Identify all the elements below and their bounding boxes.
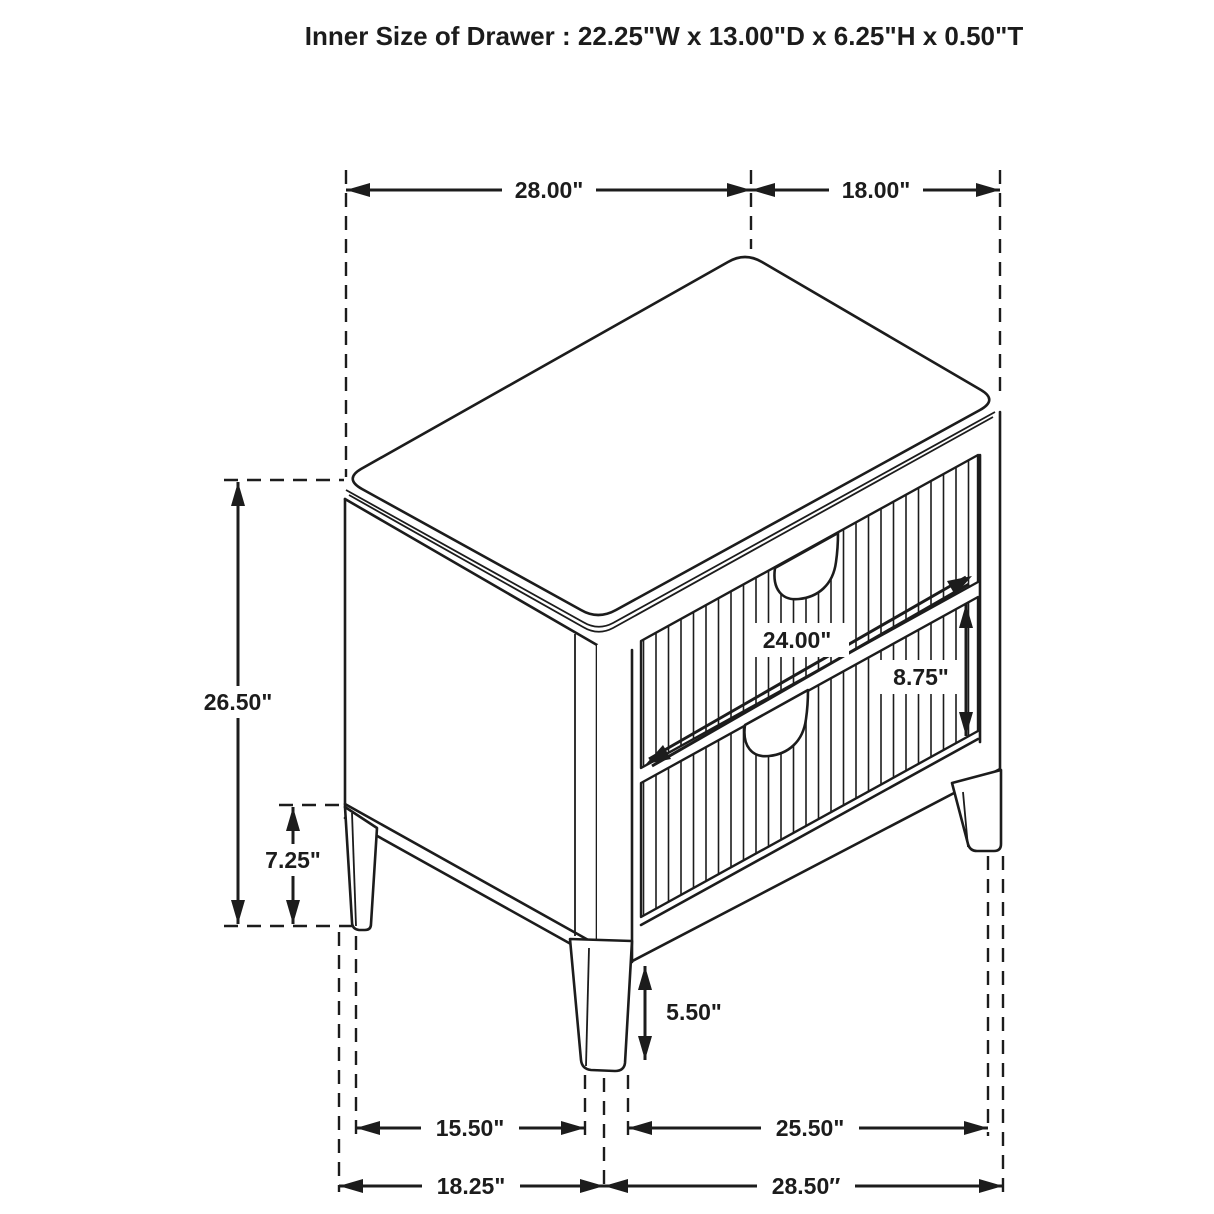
dim-label-base-depth-inner: 15.50" <box>436 1115 504 1141</box>
dim-label-overall-height: 26.50" <box>204 689 272 715</box>
dim-label-drawer-height: 8.75" <box>893 664 949 690</box>
dim-label-base-width-inner: 25.50" <box>776 1115 844 1141</box>
front-leg <box>570 939 632 1071</box>
right-leg <box>952 770 1001 851</box>
dim-label-drawer-width: 24.00" <box>763 627 831 653</box>
dim-label-top-width: 28.00" <box>515 177 583 203</box>
dim-label-base-depth-overall: 18.25" <box>437 1173 505 1199</box>
dim-label-top-depth: 18.00" <box>842 177 910 203</box>
nightstand-drawing-canvas: 28.00" 18.00" 26.50" 7.25" 24.00" 8.75" … <box>0 0 1214 1214</box>
furniture-dimension-diagram: 28.00" 18.00" 26.50" 7.25" 24.00" 8.75" … <box>0 0 1214 1214</box>
rear-left-leg <box>345 807 377 930</box>
dim-label-leg-height-side: 7.25" <box>265 847 321 873</box>
diagram-title: Inner Size of Drawer : 22.25"W x 13.00"D… <box>305 21 1024 51</box>
dim-label-base-width-overall: 28.50″ <box>772 1173 841 1199</box>
dim-label-leg-height-front: 5.50" <box>666 999 722 1025</box>
